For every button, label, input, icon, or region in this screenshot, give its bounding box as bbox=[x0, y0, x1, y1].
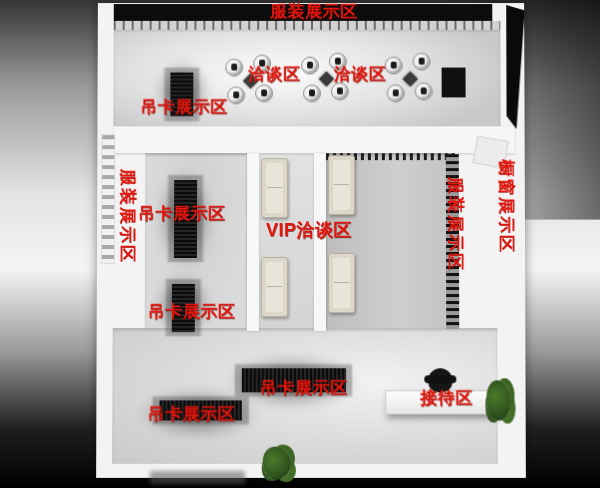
round-chair bbox=[385, 57, 403, 75]
sofa bbox=[328, 155, 355, 215]
display-cabinet bbox=[442, 68, 466, 98]
round-chair bbox=[255, 84, 273, 102]
exterior-shadow-debris bbox=[150, 471, 245, 484]
partition-wall-right bbox=[314, 153, 326, 331]
sofa bbox=[328, 253, 355, 313]
zone-label-hangtag-mid-lower: 吊卡展示区 bbox=[148, 302, 236, 322]
negotiation-table-set bbox=[383, 53, 439, 109]
zone-label-window-display: 橱窗展示区 bbox=[496, 159, 516, 254]
round-chair bbox=[225, 59, 243, 77]
left-display-slots bbox=[101, 134, 115, 264]
sofa bbox=[261, 257, 288, 317]
round-table bbox=[402, 71, 418, 86]
round-chair bbox=[413, 53, 431, 71]
plant bbox=[486, 380, 510, 420]
middle-wall bbox=[113, 126, 514, 153]
zone-label-hangtag-top: 吊卡展示区 bbox=[140, 97, 227, 116]
zone-label-negotiation-right: 洽谈区 bbox=[334, 65, 386, 84]
round-chair bbox=[415, 82, 433, 100]
plant bbox=[263, 447, 291, 479]
zone-label-vip: VIP洽谈区 bbox=[266, 220, 352, 241]
round-chair bbox=[227, 86, 245, 104]
partition-wall-left bbox=[247, 153, 259, 331]
round-chair bbox=[331, 82, 349, 100]
zone-label-hangtag-bottom-left: 吊卡展示区 bbox=[147, 404, 235, 424]
store-floorplan: 服装展示区 洽谈区 洽谈区 吊卡展示区 服装展示区 吊卡展示区 吊卡展示区 VI… bbox=[96, 3, 526, 478]
zone-label-hangtag-mid-upper: 吊卡展示区 bbox=[138, 204, 226, 224]
round-table bbox=[319, 71, 335, 86]
zone-label-negotiation-left: 洽谈区 bbox=[248, 65, 300, 84]
round-chair bbox=[303, 84, 321, 102]
sofa bbox=[261, 158, 288, 218]
zone-label-clothing-left-wall: 服装展示区 bbox=[117, 169, 137, 264]
zone-label-top-display: 服装展示区 bbox=[249, 2, 379, 21]
zone-label-reception: 接待区 bbox=[420, 388, 473, 408]
round-chair bbox=[301, 57, 319, 75]
round-chair bbox=[387, 84, 405, 102]
top-hanger-rail bbox=[114, 21, 501, 30]
zone-label-hangtag-bottom-center: 吊卡展示区 bbox=[260, 378, 348, 398]
zone-label-clothing-right-inner: 服装展示区 bbox=[445, 177, 465, 272]
window-dark-panel bbox=[506, 5, 524, 134]
